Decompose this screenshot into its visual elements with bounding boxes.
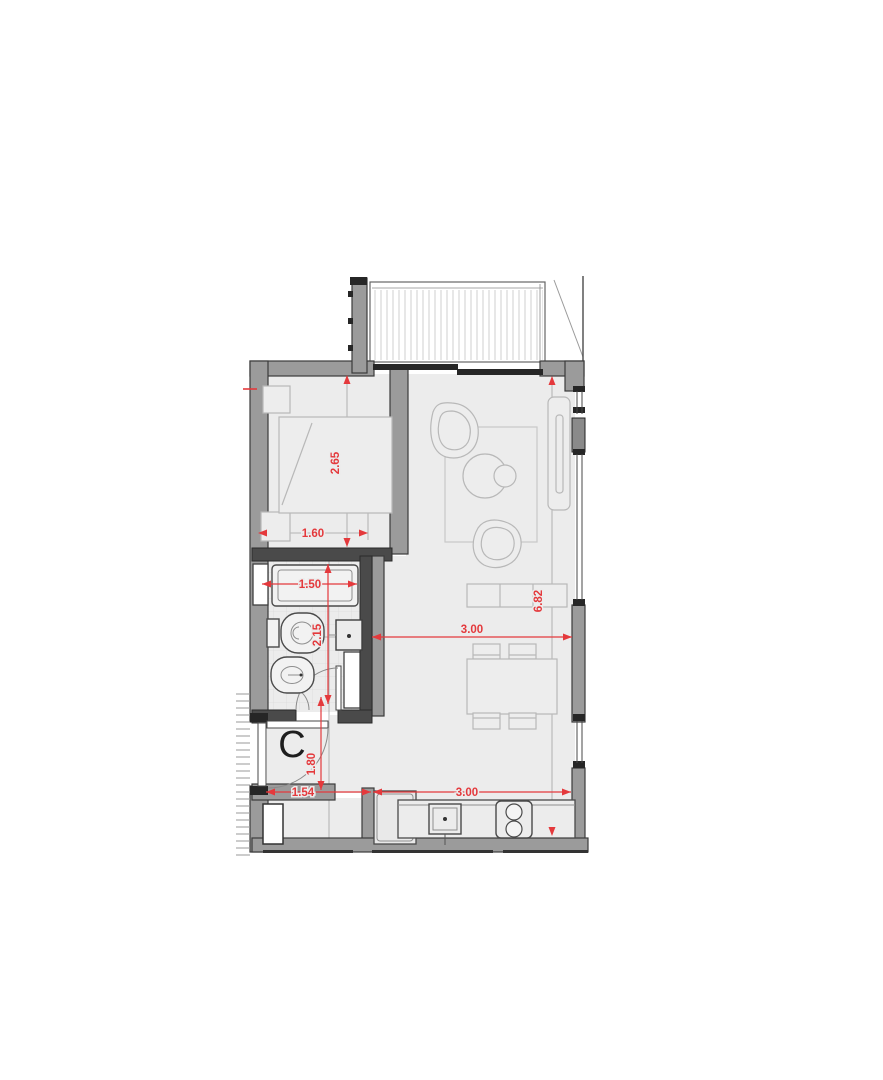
balcony-divider-wall: [352, 278, 367, 373]
window-sill-cap: [573, 761, 585, 768]
entry-door-jamb-top: [250, 713, 268, 722]
nightstand-top: [263, 386, 290, 413]
window-sill-cap: [573, 714, 585, 721]
stove-burner: [506, 804, 522, 820]
entry-door-frame: [258, 723, 266, 786]
dimension-label: 1.50: [299, 579, 321, 591]
window-sill-cap: [573, 407, 585, 413]
dimension-label: 2.65: [330, 451, 342, 474]
dining-table-icon: [467, 659, 557, 714]
dining-chair: [473, 713, 500, 729]
balcony-sliding-door-panel: [373, 364, 458, 370]
bidet-drain-dot: [300, 674, 303, 677]
dining-chair: [509, 644, 536, 659]
bottom-edge-line: [372, 850, 493, 853]
wall-nub: [348, 318, 353, 324]
toilet-tank-icon: [267, 619, 279, 647]
bottom-left-window: [263, 804, 283, 844]
window-sill-cap: [573, 599, 585, 606]
bottom-wall: [252, 838, 588, 852]
balcony: [370, 276, 583, 362]
nightstand-bottom: [261, 512, 290, 541]
window-sill-cap: [573, 386, 585, 392]
bottom-edge-line: [503, 850, 588, 853]
right-wall-window-panel: [572, 418, 585, 452]
balcony-deck-hatch: [372, 290, 543, 360]
bathroom-door-leaf: [336, 666, 341, 710]
pocket-cabinet: [344, 652, 360, 708]
dimension-label: 1.60: [302, 528, 324, 540]
floor-plan-drawing: 2.65 1.60 1.50 2.15 3.00: [0, 0, 883, 1080]
dimension-label: 6.82: [533, 590, 545, 612]
dimension-label: 3.00: [456, 787, 478, 799]
sideboard-icon: [467, 584, 567, 607]
dining-chair: [473, 644, 500, 659]
dimension-label: 3.00: [461, 624, 483, 636]
floor-plan-page: 2.65 1.60 1.50 2.15 3.00: [0, 0, 883, 1080]
balcony-divider-cap: [350, 277, 367, 285]
balcony-diagonal-line: [554, 280, 583, 357]
dimension-label: 1.80: [306, 753, 318, 775]
dining-chair: [509, 713, 536, 729]
kitchen-counter: [398, 800, 575, 838]
bathroom-south-wall-right: [338, 710, 372, 723]
balcony-sliding-door-panel: [457, 369, 543, 375]
unit-label: C: [278, 724, 305, 766]
bedroom-partition-wall: [390, 368, 408, 554]
wall-nub: [348, 291, 353, 297]
dimension-label: 1.54: [292, 787, 315, 799]
exterior-hatch-ticks: [236, 694, 250, 855]
stove-burner: [506, 821, 522, 837]
bottom-edge-line: [263, 850, 353, 853]
side-table-icon: [494, 465, 516, 487]
dimension-label: 2.15: [312, 623, 324, 646]
entry-door-jamb-bottom: [250, 786, 268, 795]
vanity-drain-dot: [347, 634, 351, 638]
right-wall-pier: [572, 605, 585, 722]
wall-nub: [348, 345, 353, 351]
sink-drain-dot: [443, 817, 447, 821]
window-sill-cap: [573, 449, 585, 455]
